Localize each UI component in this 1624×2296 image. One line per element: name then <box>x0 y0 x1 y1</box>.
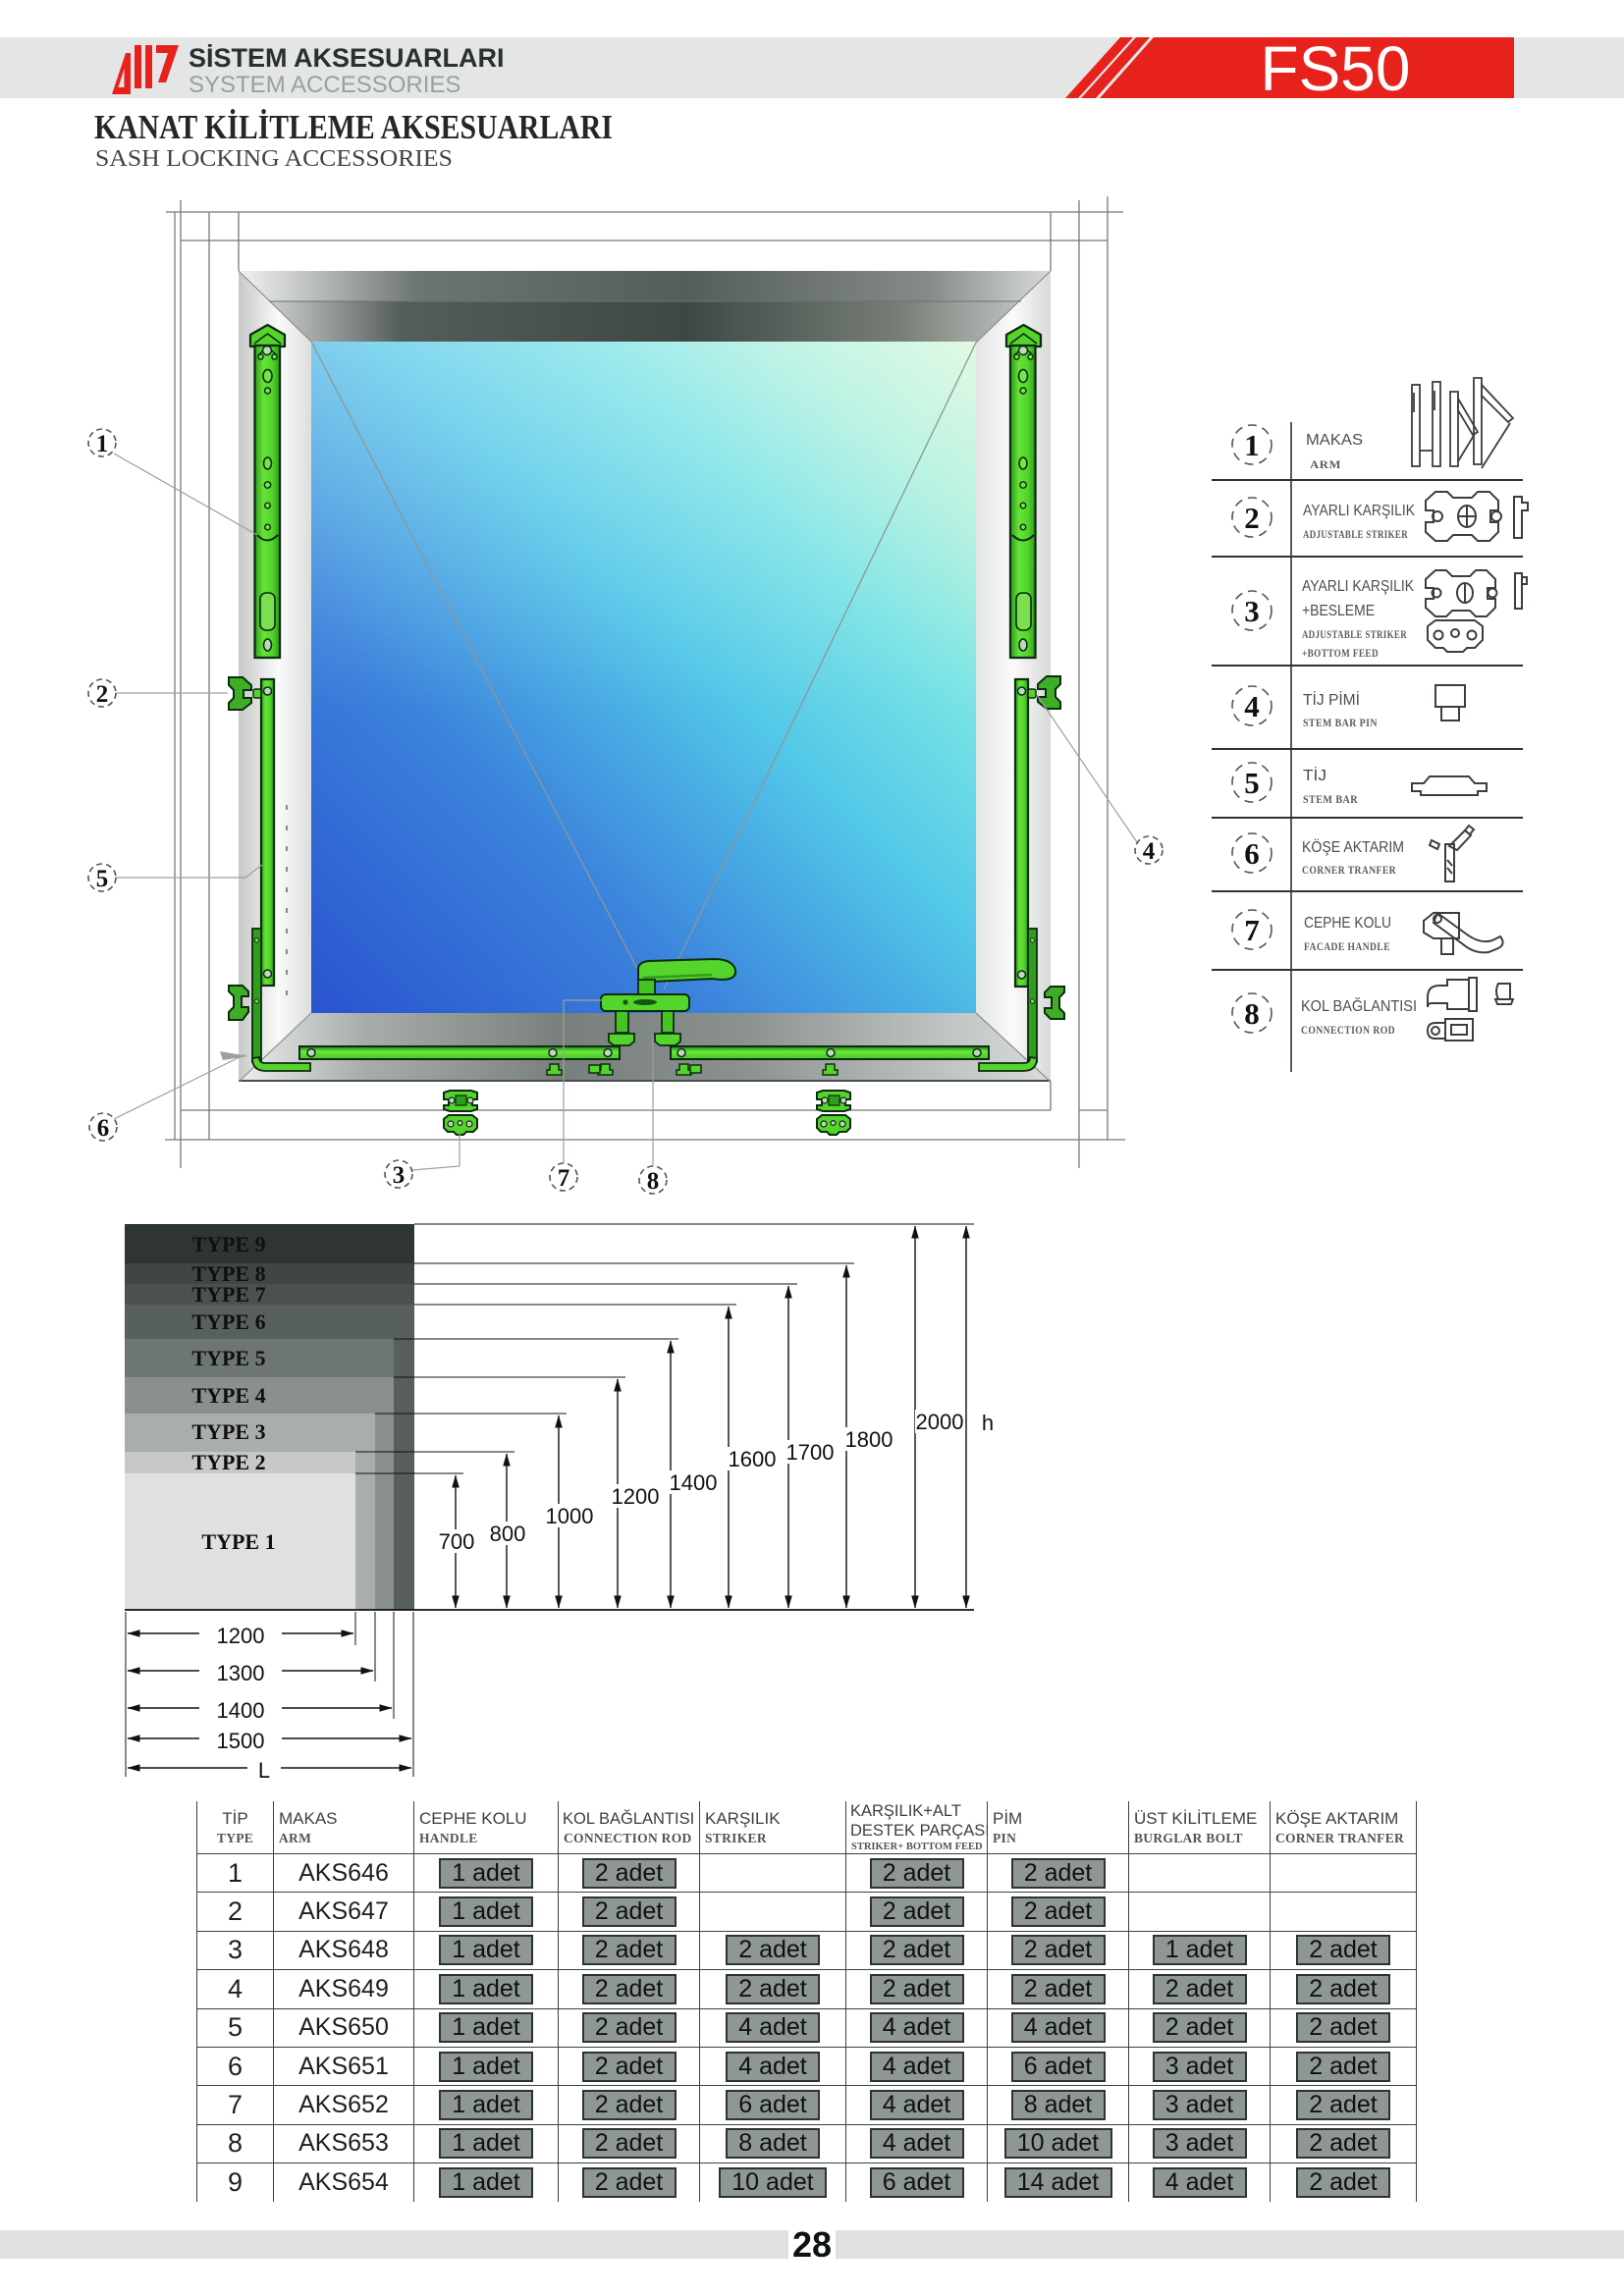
svg-text:1800: 1800 <box>845 1427 893 1452</box>
svg-text:4: 4 <box>1244 689 1260 723</box>
svg-text:CORNER TRANFER: CORNER TRANFER <box>1302 865 1396 877</box>
svg-text:TİJ: TİJ <box>1303 766 1326 784</box>
svg-text:5: 5 <box>1244 766 1260 800</box>
svg-text:800: 800 <box>490 1522 526 1546</box>
svg-text:TYPE 4: TYPE 4 <box>191 1383 265 1408</box>
svg-text:CEPHE KOLU: CEPHE KOLU <box>1304 915 1391 932</box>
svg-text:1600: 1600 <box>729 1447 777 1471</box>
svg-text:8: 8 <box>1244 996 1260 1031</box>
svg-text:1400: 1400 <box>670 1470 718 1495</box>
svg-text:KOL BAĞLANTISI: KOL BAĞLANTISI <box>1301 996 1417 1015</box>
svg-text:1300: 1300 <box>217 1661 265 1685</box>
svg-text:KÖŞE AKTARIM: KÖŞE AKTARIM <box>1302 838 1404 856</box>
svg-text:TİJ PİMİ: TİJ PİMİ <box>1303 690 1360 709</box>
svg-text:1400: 1400 <box>217 1698 265 1723</box>
svg-text:1500: 1500 <box>217 1729 265 1753</box>
svg-text:ADJUSTABLE STRIKER: ADJUSTABLE STRIKER <box>1302 629 1407 641</box>
svg-text:L: L <box>258 1758 270 1783</box>
svg-text:+BOTTOM FEED: +BOTTOM FEED <box>1302 648 1379 660</box>
svg-text:TYPE 2: TYPE 2 <box>191 1450 265 1474</box>
svg-text:2: 2 <box>1244 501 1260 535</box>
svg-text:TYPE 6: TYPE 6 <box>191 1309 265 1334</box>
svg-text:1700: 1700 <box>786 1440 835 1465</box>
svg-text:ADJUSTABLE STRIKER: ADJUSTABLE STRIKER <box>1303 529 1408 541</box>
svg-text:1000: 1000 <box>546 1504 594 1528</box>
svg-text:2000: 2000 <box>916 1410 964 1434</box>
svg-text:700: 700 <box>439 1529 475 1554</box>
svg-text:+BESLEME: +BESLEME <box>1302 603 1375 619</box>
svg-text:6: 6 <box>1244 836 1260 871</box>
svg-text:TYPE 7: TYPE 7 <box>191 1282 265 1307</box>
svg-text:STEM BAR PIN: STEM BAR PIN <box>1303 718 1378 729</box>
svg-text:ARM: ARM <box>1310 459 1341 471</box>
svg-text:AYARLI KARŞILIK: AYARLI KARŞILIK <box>1302 578 1414 595</box>
svg-text:TYPE 3: TYPE 3 <box>191 1419 265 1444</box>
svg-text:FACADE HANDLE: FACADE HANDLE <box>1304 941 1390 953</box>
svg-text:CONNECTION ROD: CONNECTION ROD <box>1301 1025 1395 1037</box>
svg-text:AYARLI KARŞILIK: AYARLI KARŞILIK <box>1303 503 1415 519</box>
svg-text:MAKAS: MAKAS <box>1306 432 1363 449</box>
svg-text:TYPE 1: TYPE 1 <box>201 1529 275 1554</box>
svg-text:STEM BAR: STEM BAR <box>1303 794 1358 806</box>
svg-text:h: h <box>982 1411 994 1435</box>
svg-text:3: 3 <box>1244 594 1260 628</box>
svg-text:TYPE 5: TYPE 5 <box>191 1346 265 1370</box>
svg-text:7: 7 <box>1244 913 1260 947</box>
svg-text:1200: 1200 <box>612 1484 660 1509</box>
svg-text:1200: 1200 <box>217 1624 265 1648</box>
svg-text:TYPE 9: TYPE 9 <box>191 1232 265 1256</box>
svg-text:1: 1 <box>1244 428 1260 462</box>
